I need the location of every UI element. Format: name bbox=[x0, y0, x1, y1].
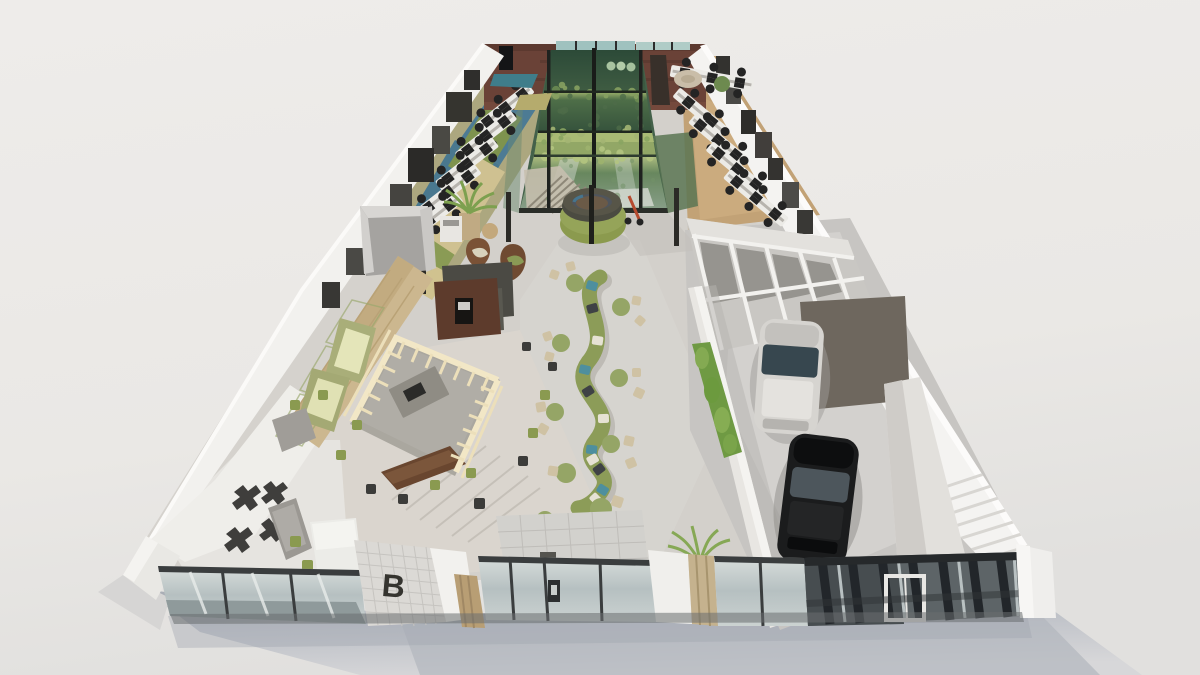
svg-text:B: B bbox=[380, 567, 406, 605]
